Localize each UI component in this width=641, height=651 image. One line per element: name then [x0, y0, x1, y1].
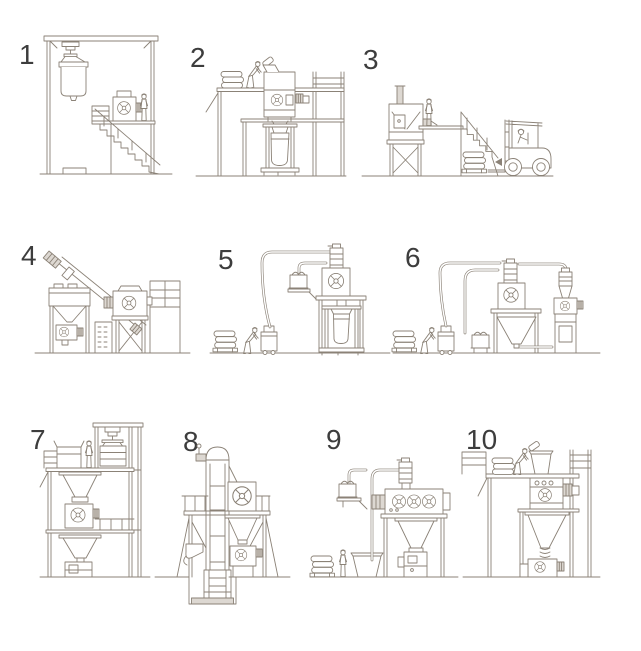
worker: [339, 550, 346, 577]
sack: [494, 464, 515, 469]
scene-5-illustration: [210, 244, 390, 355]
scene-1-illustration: [40, 36, 172, 174]
mid-feeder: [65, 504, 99, 528]
big-bag-filling-station: [319, 306, 364, 355]
conveyor-collar: [62, 267, 74, 280]
scene-6-illustration: [392, 259, 600, 355]
mill-machine: [372, 489, 450, 514]
bottom-machine: [65, 562, 92, 577]
control-panel: [95, 322, 112, 353]
hoist-trolley: [62, 42, 79, 57]
feeder-machine: [322, 268, 350, 296]
forklift: [488, 120, 551, 176]
bag-dump-feeder-machine: [263, 65, 309, 127]
scene-3-illustration: [362, 86, 553, 176]
scene-10-illustration: [462, 441, 600, 577]
floor-feeder: [520, 559, 564, 577]
palletized-sacks: [392, 331, 417, 352]
cone-hopper: [525, 512, 569, 558]
bag-dump-machine: [54, 441, 84, 468]
dump-hopper: [529, 451, 553, 474]
vacuum-pump: [338, 481, 357, 497]
worker-dumping-bag: [421, 327, 436, 353]
right-rack: [570, 450, 591, 577]
tilted-bag: [528, 441, 540, 452]
mobile-bag-dump-unit: [438, 326, 454, 355]
bag-dump-hopper-unit: [49, 284, 90, 353]
discharge-feeder: [229, 546, 262, 577]
platform-structure: [177, 496, 278, 577]
worker-dumping-bag: [244, 327, 259, 353]
cone-hopper: [395, 518, 437, 552]
worker: [140, 94, 147, 121]
hoist-with-big-bag: [100, 427, 126, 466]
scene-4-illustration: [35, 251, 190, 353]
sack: [493, 469, 514, 474]
floor-dump-hopper: [351, 553, 383, 577]
big-bag-filling-station: [261, 124, 299, 175]
sack: [221, 72, 242, 77]
feeder-machine: [113, 91, 142, 121]
palletized-sacks: [213, 331, 238, 352]
vacuum-pump: [289, 272, 308, 288]
pump-tube: [465, 270, 498, 333]
cone-hopper: [225, 515, 260, 544]
central-receiver-feeder: [491, 259, 541, 353]
receiver-with-filter: [228, 482, 256, 511]
palletized-sacks: [310, 556, 335, 577]
sack: [222, 83, 243, 88]
tower-structure: [48, 423, 143, 577]
worker: [85, 441, 92, 468]
packing-machine: [398, 552, 427, 577]
upper-cone-hopper: [59, 472, 101, 502]
lower-cone-hopper: [59, 535, 101, 562]
worker-dumping-bag: [514, 448, 529, 474]
secondary-receiver-feeder: [554, 268, 583, 353]
worker-dumping-bag: [247, 61, 262, 87]
hanging-big-bag: [59, 57, 88, 101]
scene-7-illustration: [40, 423, 150, 577]
mobile-bag-dump-unit: [261, 326, 277, 355]
scene-8-illustration: [155, 444, 290, 604]
elevator-boot: [204, 570, 231, 598]
scene-2-illustration: [196, 56, 346, 176]
inlet-chute: [184, 544, 203, 565]
vacuum-receiver: [328, 244, 343, 269]
palletized-sacks: [462, 152, 487, 173]
vacuum-receiver: [397, 458, 412, 483]
scene-9-illustration: [310, 458, 458, 577]
conveyor-drive-motor: [43, 251, 61, 268]
sack: [492, 458, 513, 463]
storage-rack: [150, 281, 180, 353]
floor-pallet: [63, 168, 86, 174]
feeder-machine: [530, 478, 579, 509]
sack: [223, 77, 244, 82]
process-diagram-sheet: 1 2 3 4 5 6 7 8 9 10: [0, 0, 641, 651]
vacuum-pump: [471, 332, 490, 348]
equipment-diagrams-canvas: [0, 0, 641, 651]
